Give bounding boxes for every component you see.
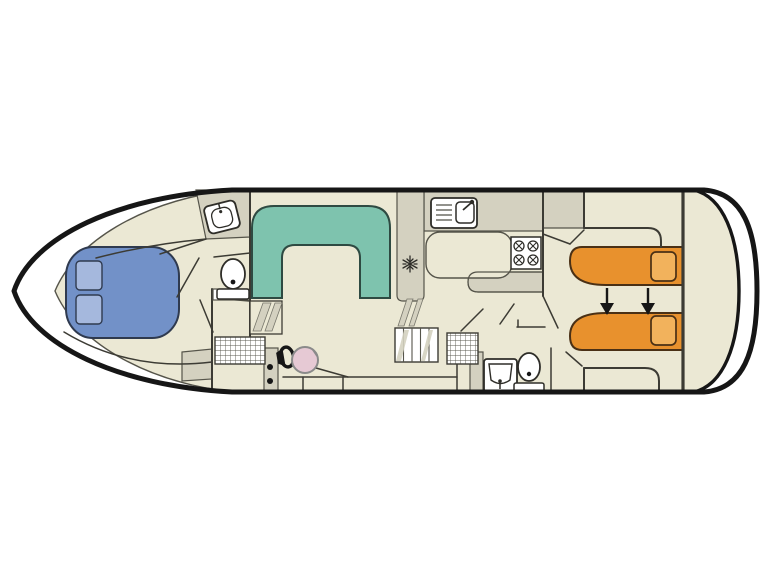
shower-grate-icon (215, 337, 265, 364)
galley-island-counter (426, 232, 512, 278)
galley-sink-icon (431, 198, 477, 228)
aft-bed-pillow (651, 316, 676, 345)
stairs-icon (250, 301, 282, 334)
washbasin-icon (484, 359, 517, 392)
boat-floor-plan (0, 0, 768, 576)
bow-double-bed (66, 247, 179, 338)
bow-step-shade (182, 349, 212, 381)
stern-platform-floor (683, 190, 739, 392)
shower-grate-icon (447, 333, 478, 364)
stove-burners-icon (511, 237, 541, 269)
floor-plan-svg (0, 0, 768, 576)
aft-bed-pillow (651, 252, 676, 281)
bed-pillow (76, 261, 102, 290)
helm-console (264, 348, 278, 392)
galley-side-counter (397, 190, 424, 301)
console-knob (267, 364, 273, 370)
bed-pillow (76, 295, 102, 324)
console-knob (267, 378, 273, 384)
